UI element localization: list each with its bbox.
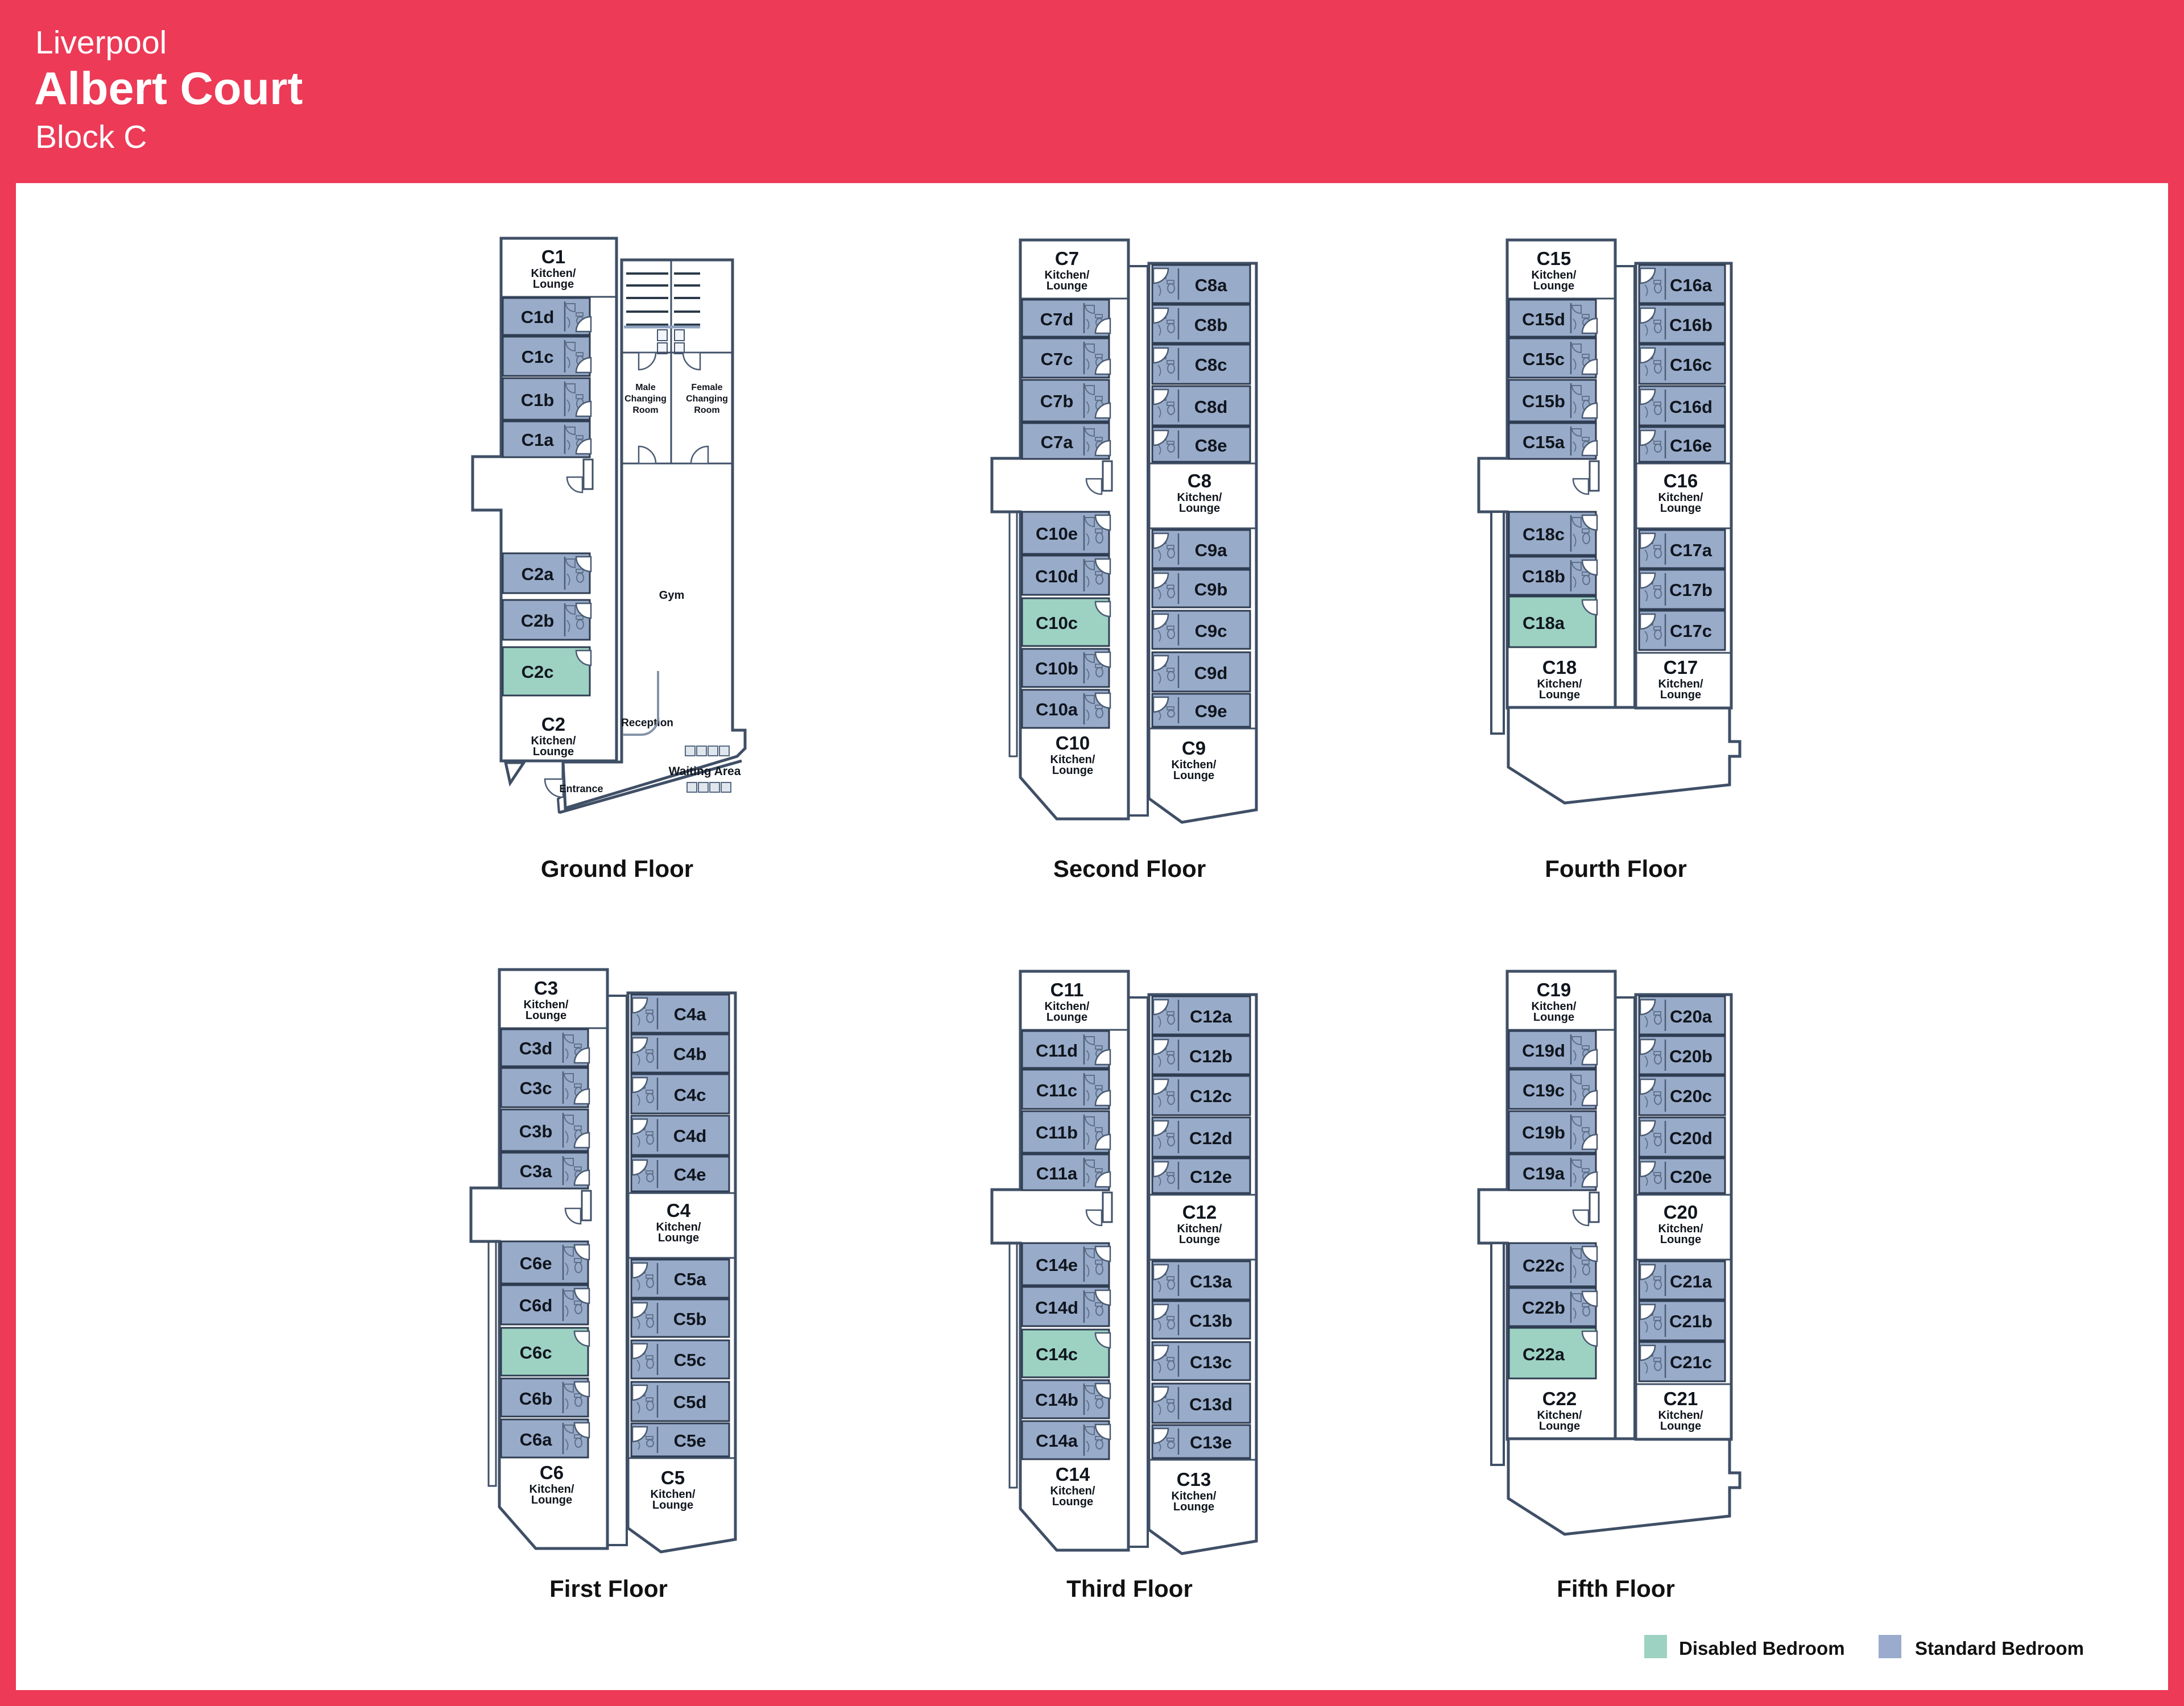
svg-text:Lounge: Lounge <box>1052 764 1093 777</box>
svg-text:Lounge: Lounge <box>652 1499 693 1512</box>
svg-text:C12a: C12a <box>1190 1007 1232 1026</box>
svg-text:C11d: C11d <box>1036 1041 1078 1061</box>
svg-text:C4e: C4e <box>674 1165 706 1185</box>
svg-text:Standard Bedroom: Standard Bedroom <box>1915 1638 2084 1659</box>
svg-text:C14b: C14b <box>1035 1390 1078 1410</box>
svg-text:Lounge: Lounge <box>1533 280 1574 292</box>
svg-text:Lounge: Lounge <box>1533 1011 1574 1024</box>
svg-text:C9: C9 <box>1182 738 1206 759</box>
svg-text:C2c: C2c <box>522 662 554 682</box>
svg-text:C13: C13 <box>1177 1469 1211 1490</box>
svg-text:C1a: C1a <box>522 430 555 450</box>
svg-text:C12: C12 <box>1182 1202 1217 1223</box>
svg-text:Lounge: Lounge <box>1046 280 1087 292</box>
svg-text:C10: C10 <box>1056 732 1090 753</box>
svg-text:C6b: C6b <box>519 1389 553 1409</box>
svg-text:Lounge: Lounge <box>1046 1011 1087 1024</box>
svg-text:C17a: C17a <box>1670 540 1713 560</box>
svg-text:C7b: C7b <box>1040 391 1074 411</box>
svg-text:C16d: C16d <box>1669 397 1713 417</box>
svg-text:Female: Female <box>691 383 722 392</box>
svg-text:C15: C15 <box>1537 248 1571 269</box>
svg-text:C12b: C12b <box>1189 1046 1232 1066</box>
svg-text:C8c: C8c <box>1195 355 1227 375</box>
svg-text:C16c: C16c <box>1670 355 1712 375</box>
svg-text:C20c: C20c <box>1670 1086 1712 1106</box>
svg-text:C13c: C13c <box>1190 1352 1232 1372</box>
svg-text:C8b: C8b <box>1194 315 1228 335</box>
svg-text:C22c: C22c <box>1523 1256 1565 1276</box>
svg-text:C1b: C1b <box>521 390 555 410</box>
svg-text:C14: C14 <box>1056 1464 1090 1485</box>
svg-text:Lounge: Lounge <box>1660 1233 1701 1246</box>
svg-text:C3a: C3a <box>520 1161 553 1181</box>
svg-text:C20b: C20b <box>1669 1046 1713 1066</box>
svg-text:Male: Male <box>635 383 656 392</box>
svg-text:C14d: C14d <box>1035 1298 1078 1318</box>
svg-text:Lounge: Lounge <box>1660 1420 1701 1432</box>
svg-text:C8a: C8a <box>1195 275 1228 295</box>
svg-text:Second Floor: Second Floor <box>1053 855 1206 882</box>
svg-text:Lounge: Lounge <box>1052 1496 1093 1508</box>
svg-text:C2b: C2b <box>521 611 555 631</box>
svg-text:C9b: C9b <box>1194 579 1228 599</box>
svg-text:C14a: C14a <box>1036 1431 1078 1451</box>
svg-text:C4d: C4d <box>673 1126 707 1146</box>
svg-text:C4a: C4a <box>674 1004 707 1024</box>
svg-text:C8e: C8e <box>1195 436 1227 456</box>
svg-text:C6a: C6a <box>520 1430 553 1450</box>
svg-text:C1d: C1d <box>521 307 555 327</box>
svg-text:C19a: C19a <box>1523 1163 1565 1183</box>
svg-text:C4: C4 <box>667 1200 691 1221</box>
svg-text:C6d: C6d <box>519 1295 553 1315</box>
svg-text:C10e: C10e <box>1036 524 1078 544</box>
svg-text:Room: Room <box>632 405 658 415</box>
svg-text:C9e: C9e <box>1195 701 1227 721</box>
svg-text:Lounge: Lounge <box>1539 1420 1580 1432</box>
svg-text:C9c: C9c <box>1195 621 1227 641</box>
svg-text:C17c: C17c <box>1670 621 1712 641</box>
svg-text:Lounge: Lounge <box>526 1009 566 1022</box>
svg-text:C4b: C4b <box>673 1044 707 1064</box>
svg-text:C21c: C21c <box>1670 1352 1712 1372</box>
svg-text:C7d: C7d <box>1040 309 1074 329</box>
svg-text:C22a: C22a <box>1523 1344 1565 1364</box>
svg-text:C6e: C6e <box>520 1253 552 1273</box>
svg-text:C21b: C21b <box>1669 1311 1713 1331</box>
svg-text:C18b: C18b <box>1522 566 1565 586</box>
svg-text:Ground Floor: Ground Floor <box>541 855 693 882</box>
svg-text:C16a: C16a <box>1670 275 1713 295</box>
svg-text:Third Floor: Third Floor <box>1066 1575 1193 1602</box>
svg-text:C20a: C20a <box>1670 1007 1713 1026</box>
svg-text:Reception: Reception <box>621 717 673 729</box>
svg-text:Room: Room <box>694 405 719 415</box>
svg-text:C20e: C20e <box>1670 1167 1712 1187</box>
svg-text:C22: C22 <box>1542 1388 1577 1409</box>
svg-text:Lounge: Lounge <box>533 278 574 291</box>
svg-text:C6: C6 <box>540 1462 564 1483</box>
svg-text:C5a: C5a <box>674 1269 707 1289</box>
svg-text:C5d: C5d <box>673 1392 707 1412</box>
svg-text:C15c: C15c <box>1523 349 1565 369</box>
svg-text:C17b: C17b <box>1669 580 1713 600</box>
svg-text:Entrance: Entrance <box>559 783 603 794</box>
svg-text:Fourth Floor: Fourth Floor <box>1545 855 1687 882</box>
svg-text:C13e: C13e <box>1190 1432 1232 1452</box>
svg-text:C18a: C18a <box>1523 613 1565 633</box>
svg-text:C19d: C19d <box>1522 1041 1565 1061</box>
svg-text:C9a: C9a <box>1195 540 1228 560</box>
svg-text:C8d: C8d <box>1194 397 1228 417</box>
svg-text:C7c: C7c <box>1041 349 1073 369</box>
svg-text:C22b: C22b <box>1522 1298 1565 1318</box>
svg-text:C11: C11 <box>1050 979 1084 1000</box>
svg-text:Lounge: Lounge <box>1660 689 1701 701</box>
svg-text:C16e: C16e <box>1670 436 1712 456</box>
svg-text:C13a: C13a <box>1190 1272 1232 1291</box>
svg-text:C2: C2 <box>541 714 565 735</box>
svg-text:C5b: C5b <box>673 1309 707 1329</box>
svg-text:C20: C20 <box>1664 1202 1698 1223</box>
svg-text:C8: C8 <box>1188 470 1211 491</box>
svg-text:C12d: C12d <box>1189 1128 1232 1148</box>
svg-text:C19b: C19b <box>1522 1123 1565 1142</box>
svg-text:C11a: C11a <box>1036 1163 1078 1183</box>
svg-text:C19: C19 <box>1537 979 1571 1000</box>
svg-text:C12e: C12e <box>1190 1167 1232 1187</box>
svg-text:C15a: C15a <box>1523 432 1565 452</box>
svg-text:C3: C3 <box>534 978 558 999</box>
svg-text:Lounge: Lounge <box>531 1494 572 1506</box>
svg-text:C10c: C10c <box>1036 613 1078 633</box>
svg-text:C11c: C11c <box>1036 1080 1077 1100</box>
svg-text:C7a: C7a <box>1041 432 1074 452</box>
svg-text:C11b: C11b <box>1036 1123 1078 1142</box>
svg-text:C2a: C2a <box>522 564 555 584</box>
svg-text:C6c: C6c <box>520 1343 552 1363</box>
svg-text:C10d: C10d <box>1035 566 1078 586</box>
svg-text:C13d: C13d <box>1189 1394 1232 1414</box>
svg-text:C7: C7 <box>1055 248 1079 269</box>
svg-text:C17: C17 <box>1664 657 1698 678</box>
svg-text:C5e: C5e <box>674 1431 706 1451</box>
svg-text:C14c: C14c <box>1036 1344 1078 1364</box>
svg-text:C12c: C12c <box>1190 1086 1232 1106</box>
svg-text:C14e: C14e <box>1036 1255 1078 1275</box>
svg-text:Lounge: Lounge <box>1173 769 1214 782</box>
svg-text:C4c: C4c <box>674 1085 706 1105</box>
svg-text:Waiting Area: Waiting Area <box>669 765 741 778</box>
svg-text:Lounge: Lounge <box>1173 1501 1214 1513</box>
svg-text:C15b: C15b <box>1522 391 1565 411</box>
svg-text:C21a: C21a <box>1670 1272 1713 1291</box>
svg-text:C18: C18 <box>1542 657 1577 678</box>
svg-text:Fifth Floor: Fifth Floor <box>1557 1575 1675 1602</box>
svg-text:C16b: C16b <box>1669 315 1713 335</box>
svg-text:Lounge: Lounge <box>1179 502 1220 515</box>
svg-text:C15d: C15d <box>1522 309 1565 329</box>
svg-text:C3d: C3d <box>519 1038 553 1058</box>
svg-text:C16: C16 <box>1664 470 1698 491</box>
svg-text:Gym: Gym <box>659 589 684 602</box>
svg-text:C5c: C5c <box>674 1350 706 1370</box>
svg-text:Lounge: Lounge <box>658 1232 699 1244</box>
svg-text:C3b: C3b <box>519 1121 553 1141</box>
svg-text:Lounge: Lounge <box>1660 502 1701 515</box>
svg-text:C10a: C10a <box>1036 699 1078 719</box>
svg-text:C20d: C20d <box>1669 1128 1713 1148</box>
svg-text:C1c: C1c <box>522 347 554 367</box>
svg-text:C19c: C19c <box>1523 1080 1565 1100</box>
svg-text:C5: C5 <box>661 1467 685 1488</box>
svg-text:Disabled Bedroom: Disabled Bedroom <box>1679 1638 1845 1659</box>
svg-text:C9d: C9d <box>1194 663 1228 683</box>
svg-text:C3c: C3c <box>520 1078 552 1098</box>
svg-text:C10b: C10b <box>1035 659 1078 678</box>
svg-text:Changing: Changing <box>686 394 728 404</box>
svg-text:Lounge: Lounge <box>1179 1233 1220 1246</box>
svg-text:Changing: Changing <box>624 394 667 404</box>
svg-text:Lounge: Lounge <box>1539 689 1580 701</box>
svg-text:C13b: C13b <box>1189 1311 1232 1331</box>
svg-text:First Floor: First Floor <box>549 1575 668 1602</box>
svg-text:Lounge: Lounge <box>533 746 574 758</box>
svg-text:C18c: C18c <box>1523 524 1565 544</box>
svg-text:C1: C1 <box>541 246 565 267</box>
svg-text:C21: C21 <box>1664 1388 1698 1409</box>
